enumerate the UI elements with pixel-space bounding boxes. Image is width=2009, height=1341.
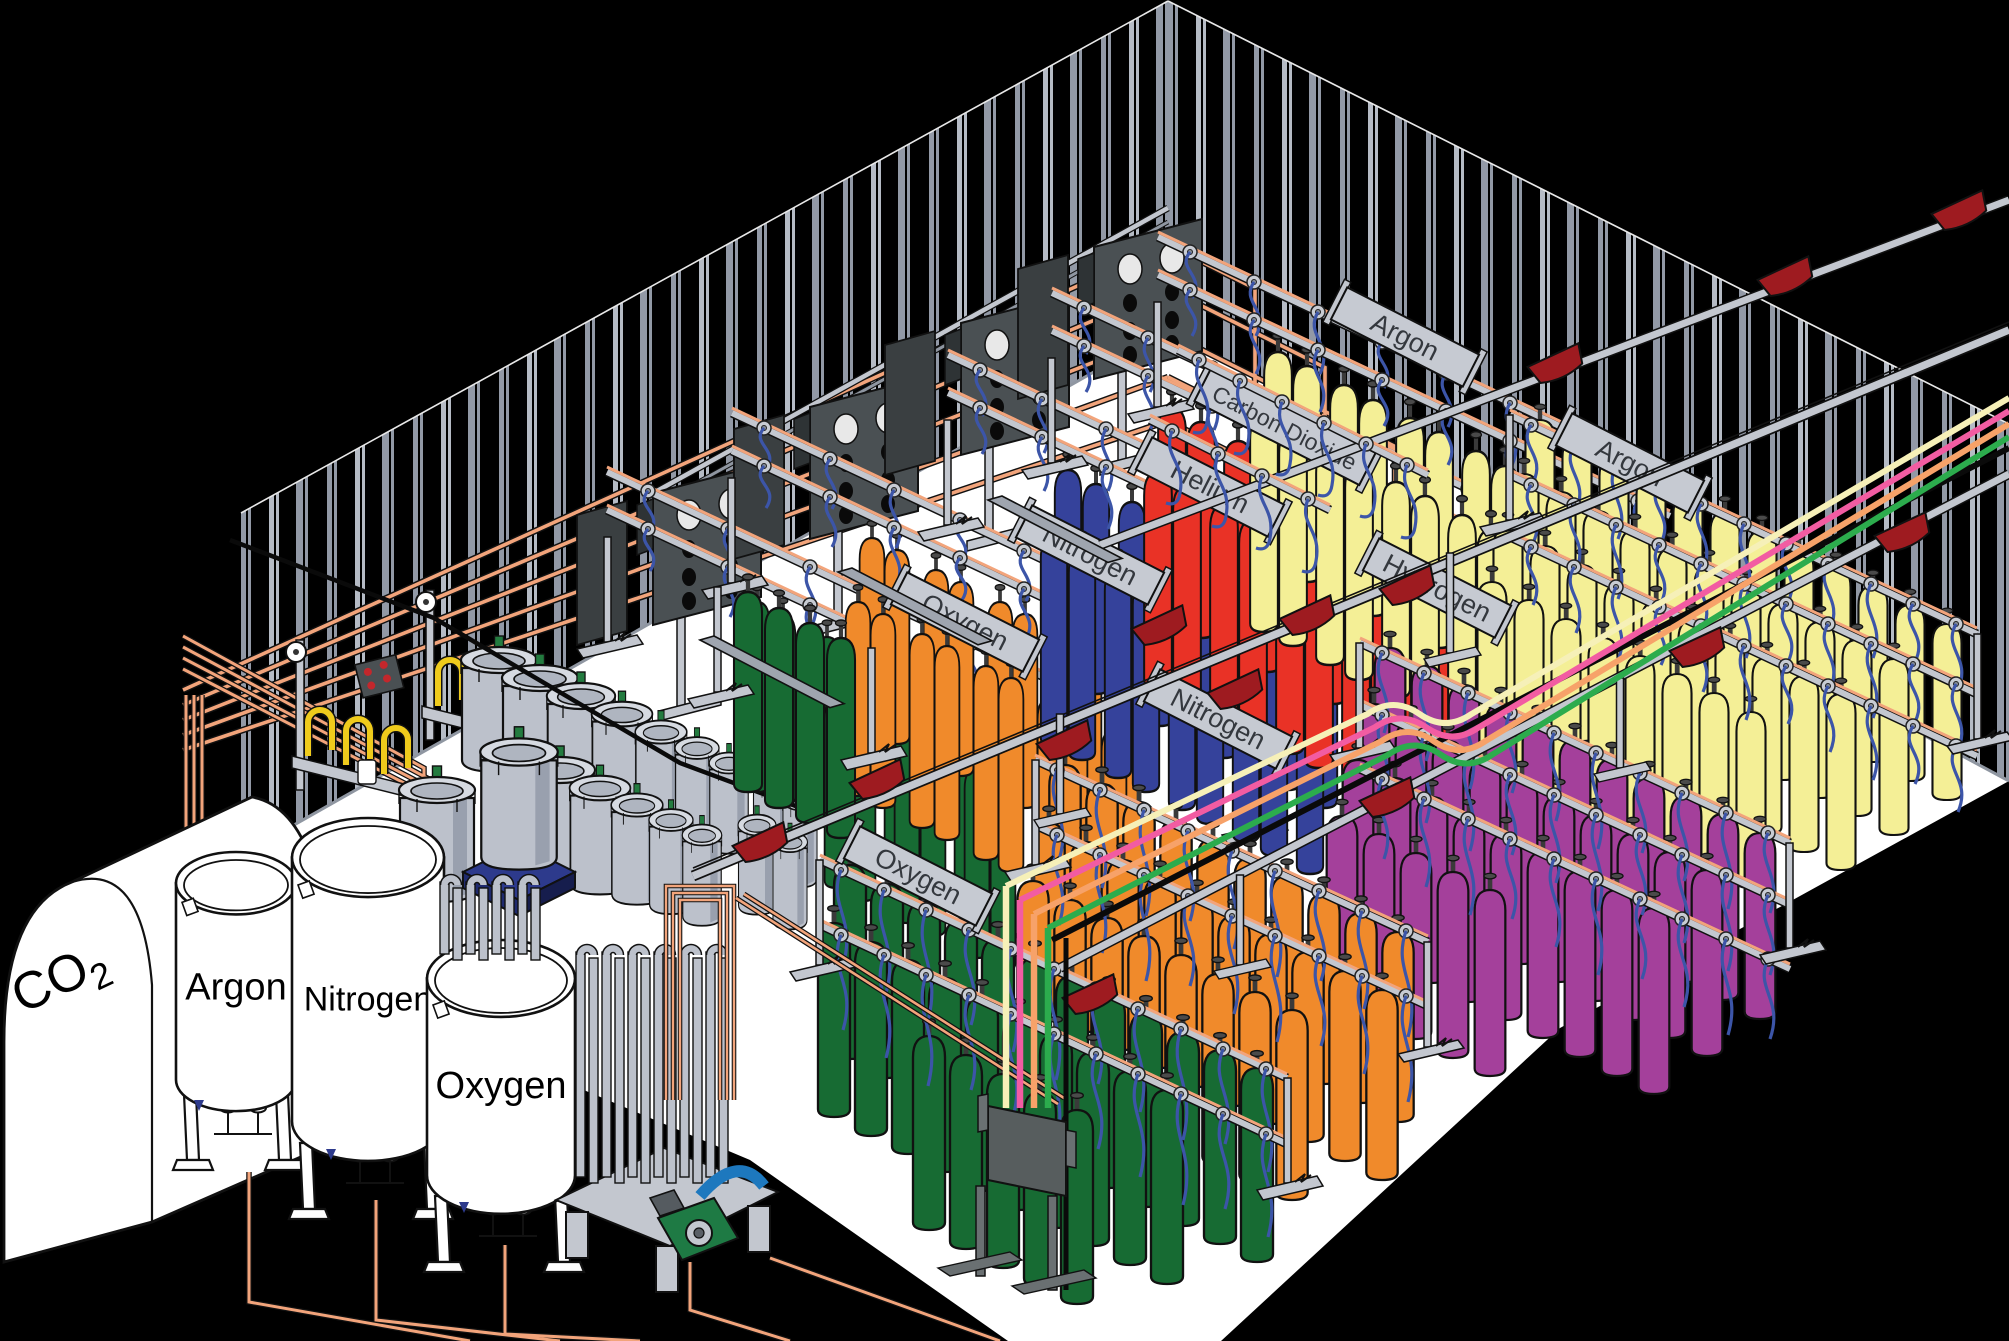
svg-text:Nitrogen: Nitrogen — [304, 981, 433, 1019]
svg-text:Argon: Argon — [185, 966, 286, 1008]
svg-text:Oxygen: Oxygen — [436, 1065, 567, 1107]
